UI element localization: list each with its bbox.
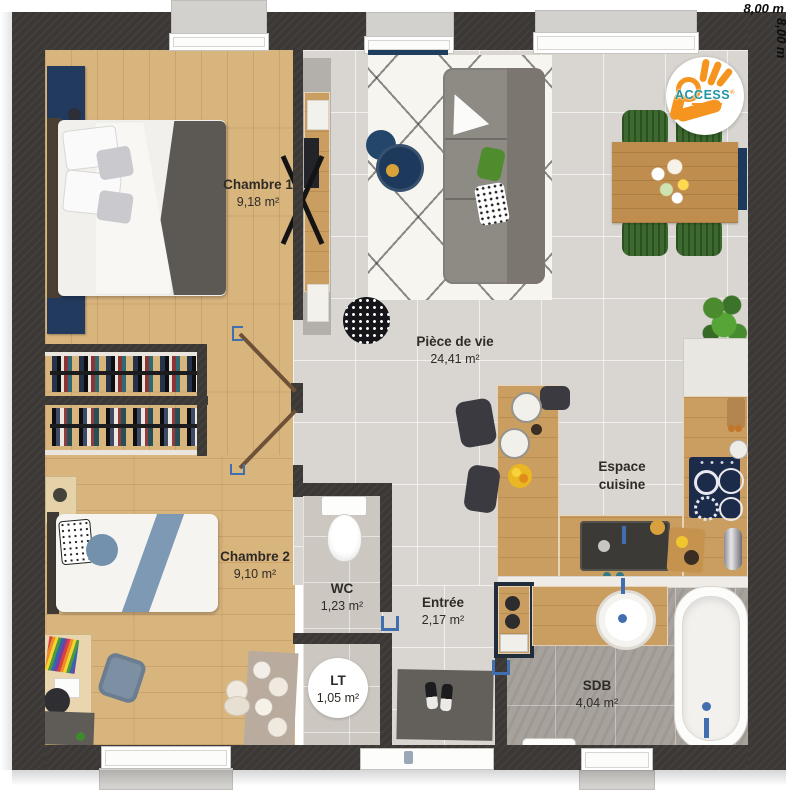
- sdb-sink-drain: [618, 614, 627, 623]
- room-area: 9,18 m²: [223, 194, 293, 210]
- toy-green: [76, 732, 85, 741]
- cooktop-knobs: [697, 461, 735, 464]
- serving-board: [667, 527, 706, 573]
- room-name: WC: [321, 580, 363, 598]
- room-name: Pièce de vie: [416, 333, 493, 351]
- room-name: Chambre 2: [220, 548, 290, 566]
- coffee-maker: [724, 528, 742, 570]
- small-rug: [43, 711, 94, 746]
- window-bench: [738, 148, 747, 210]
- room-area: 9,10 m²: [220, 566, 290, 582]
- teddy-body: [224, 696, 250, 716]
- rolled-towel: [505, 614, 520, 629]
- cooking-pot: [511, 392, 542, 423]
- toilet-tank: [321, 496, 367, 516]
- sofa-backrest: [507, 68, 545, 284]
- dining-chair: [676, 218, 722, 256]
- tub-faucet: [704, 718, 709, 738]
- bed1-cushion: [96, 190, 134, 224]
- window-living-right: [533, 32, 699, 54]
- room-label-piece-de-vie: Pièce de vie 24,41 m²: [416, 333, 493, 367]
- wc-door-swing-icon: [381, 616, 399, 631]
- room-label-chambre2: Chambre 2 9,10 m²: [220, 548, 290, 582]
- coffee-table-tray: [386, 164, 399, 177]
- entry-door-handle: [404, 751, 413, 764]
- bed2-pillow-round: [86, 534, 118, 566]
- dimension-right: 8,00 m: [774, 18, 789, 58]
- wall-chambre1: [293, 50, 303, 320]
- wall-wc-top: [293, 483, 392, 496]
- rolled-towel: [505, 596, 520, 611]
- plate: [729, 440, 748, 459]
- wall-right: [748, 12, 786, 770]
- brand-text: ACCESS: [675, 88, 730, 102]
- door-handle-icon: [232, 326, 243, 341]
- sdb-door-swing-icon: [492, 660, 510, 675]
- spice-jars: [728, 424, 742, 433]
- window-chambre1: [169, 33, 269, 51]
- burner: [718, 468, 744, 494]
- room-area: 2,17 m²: [422, 612, 464, 628]
- sink-drain: [598, 540, 610, 552]
- sneaker: [440, 684, 453, 712]
- jar: [650, 520, 665, 535]
- rack-rail: [50, 371, 204, 375]
- entry-door: [360, 748, 494, 770]
- sink-faucet: [622, 526, 626, 544]
- colored-pencils: [45, 636, 79, 674]
- room-name: LT: [317, 672, 359, 690]
- room-name: SDB: [576, 677, 618, 695]
- floor-plan: Chambre 1 9,18 m² Chambre 2 9,10 m² Pièc…: [0, 0, 800, 800]
- room-label-wc: WC 1,23 m²: [321, 580, 363, 614]
- sdb-faucet: [621, 578, 625, 594]
- rack-rail: [50, 424, 204, 428]
- shadow-bottom: [12, 770, 786, 786]
- logo-underline: [692, 103, 722, 105]
- window-sdb: [581, 748, 653, 772]
- bed1-cushion: [96, 145, 135, 180]
- room-area: 1,05 m²: [317, 690, 359, 706]
- room-label-sdb: SDB 4,04 m²: [576, 677, 618, 711]
- logo-wordmark: ACCESS®: [666, 88, 744, 102]
- shadow-left: [0, 12, 12, 770]
- logo-badge: ACCESS®: [666, 57, 744, 135]
- dining-chair: [622, 218, 668, 256]
- wall-dressing-top: [45, 344, 205, 352]
- room-area: 24,41 m²: [416, 351, 493, 367]
- room-name: Entrée: [422, 594, 464, 612]
- room-label-entree: Entrée 2,17 m²: [422, 594, 464, 628]
- shelf-line: [45, 450, 197, 455]
- plush-toys: [248, 660, 294, 744]
- tub-drain: [702, 702, 711, 711]
- bathtub-basin: [682, 596, 740, 741]
- shelf-line: [45, 352, 197, 356]
- window-sill: [366, 12, 454, 38]
- books: [500, 634, 528, 652]
- registered-mark: ®: [730, 90, 735, 96]
- burner: [719, 497, 743, 521]
- wall-left: [12, 12, 45, 770]
- console-drawers: [307, 284, 329, 322]
- room-area: 4,04 m²: [576, 695, 618, 711]
- wall-dressing-stub: [197, 344, 207, 456]
- console-shelf: [307, 100, 329, 130]
- room-area: 1,23 m²: [321, 598, 363, 614]
- bar-item: [531, 424, 542, 435]
- window-chambre2: [101, 746, 231, 770]
- bar-stool: [454, 397, 497, 449]
- cooking-pot: [499, 428, 530, 459]
- bowl-dark: [684, 550, 699, 565]
- room-name: Espace cuisine: [583, 458, 661, 493]
- room-label-espace-cuisine: Espace cuisine: [583, 458, 661, 493]
- wall-wc-lt: [293, 633, 392, 644]
- wall-wc-right: [380, 496, 392, 612]
- room-label-chambre1: Chambre 1 9,18 m²: [223, 176, 293, 210]
- door-handle-icon: [230, 464, 245, 475]
- dimension-top: 8,00 m: [698, 1, 784, 16]
- fruit-bowl: [508, 464, 532, 488]
- sofa-seam1: [445, 138, 507, 140]
- burner: [694, 470, 719, 495]
- window-valance-navy: [368, 50, 448, 55]
- desk-chair: [44, 688, 70, 714]
- room-label-lt: LT 1,05 m²: [317, 672, 359, 706]
- toilet-bowl: [327, 514, 362, 562]
- coffee-table: [376, 144, 424, 192]
- room-name: Chambre 1: [223, 176, 293, 194]
- burner: [694, 496, 719, 521]
- pouf: [343, 297, 390, 344]
- lemon: [676, 536, 688, 548]
- wall-dressing-mid: [45, 396, 208, 405]
- bar-stool: [463, 464, 501, 514]
- fridge: [683, 338, 750, 398]
- bar-stool: [540, 386, 570, 410]
- window-sill: [171, 0, 267, 36]
- table-flowers: [640, 150, 700, 210]
- decor-compass: [53, 488, 67, 502]
- wall-lt-right: [380, 640, 392, 745]
